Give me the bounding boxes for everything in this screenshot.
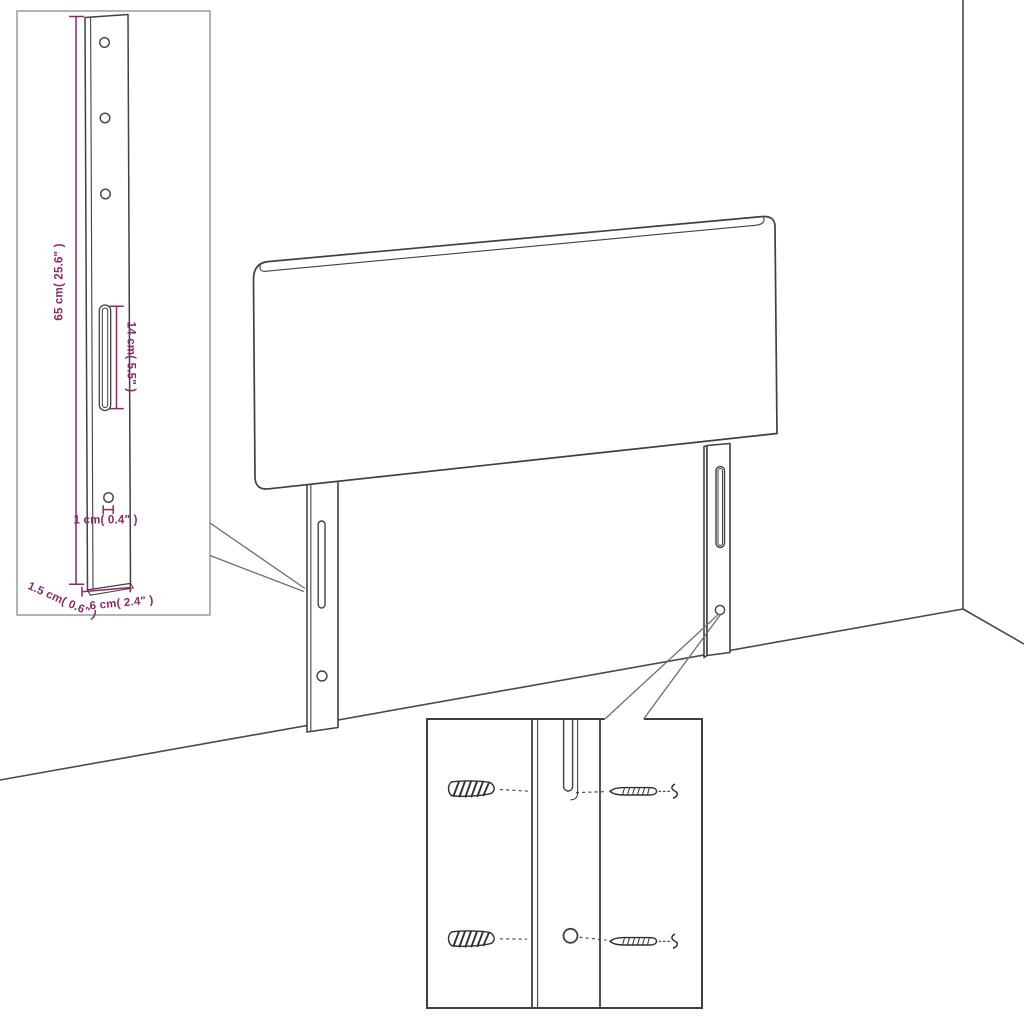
left-leg-hole xyxy=(317,671,327,681)
floor-line-right xyxy=(963,609,1024,644)
slot-dimension-label: 14 cm( 5.5" ) xyxy=(125,322,137,393)
leg-detail-inset: 65 cm( 25.6" ) 14 cm( 5.5" ) 1 cm( 0.4" … xyxy=(17,11,210,621)
mounting-detail-inset xyxy=(427,719,702,1008)
headboard-panel xyxy=(253,216,777,489)
callout-line-inset-to-leg-lower xyxy=(210,556,304,592)
callout-line-inset-to-leg-upper xyxy=(210,523,305,589)
headboard-diagram-canvas: 65 cm( 25.6" ) 14 cm( 5.5" ) 1 cm( 0.4" … xyxy=(0,0,1024,1024)
right-leg-slot xyxy=(716,467,725,548)
product-diagram: 65 cm( 25.6" ) 14 cm( 5.5" ) 1 cm( 0.4" … xyxy=(0,0,1024,1024)
height-dimension-label: 65 cm( 25.6" ) xyxy=(54,243,66,320)
left-leg-slot xyxy=(318,521,325,608)
hole-dimension-label: 1 cm( 0.4" ) xyxy=(74,515,138,527)
right-leg-hole xyxy=(715,605,724,614)
headboard-left-leg xyxy=(307,466,338,733)
callout-line-hole-to-inset-right xyxy=(644,614,721,718)
callout-line-hole-to-inset-left xyxy=(605,614,719,719)
detail-leg-drawing xyxy=(85,15,133,596)
headboard-right-leg xyxy=(704,444,730,658)
